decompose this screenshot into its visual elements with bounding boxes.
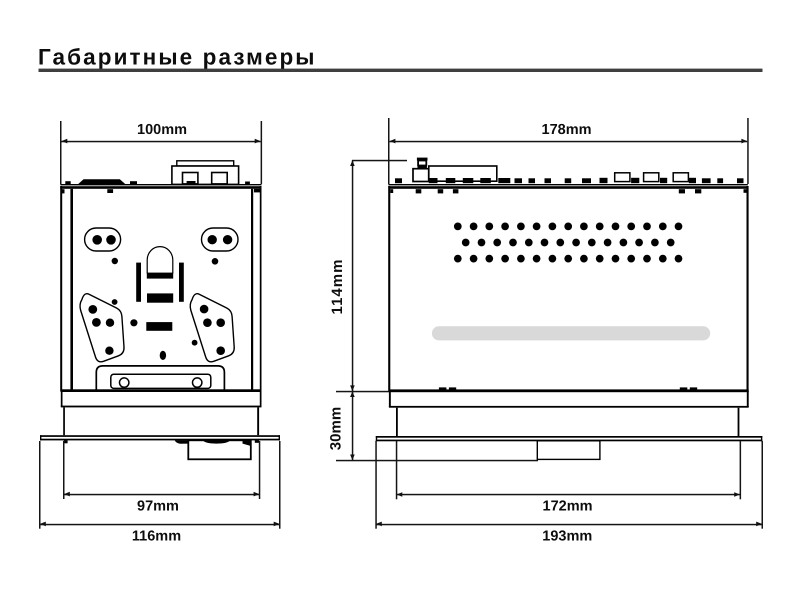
svg-text:114mm: 114mm: [329, 259, 346, 315]
svg-text:178mm: 178mm: [542, 122, 592, 138]
svg-text:30mm: 30mm: [328, 407, 345, 450]
svg-text:Габаритные размеры: Габаритные размеры: [38, 45, 317, 70]
svg-text:172mm: 172mm: [543, 499, 593, 515]
svg-text:97mm: 97mm: [137, 499, 179, 515]
svg-text:100mm: 100mm: [137, 122, 187, 138]
svg-text:193mm: 193mm: [542, 529, 592, 545]
svg-text:116mm: 116mm: [132, 529, 181, 545]
